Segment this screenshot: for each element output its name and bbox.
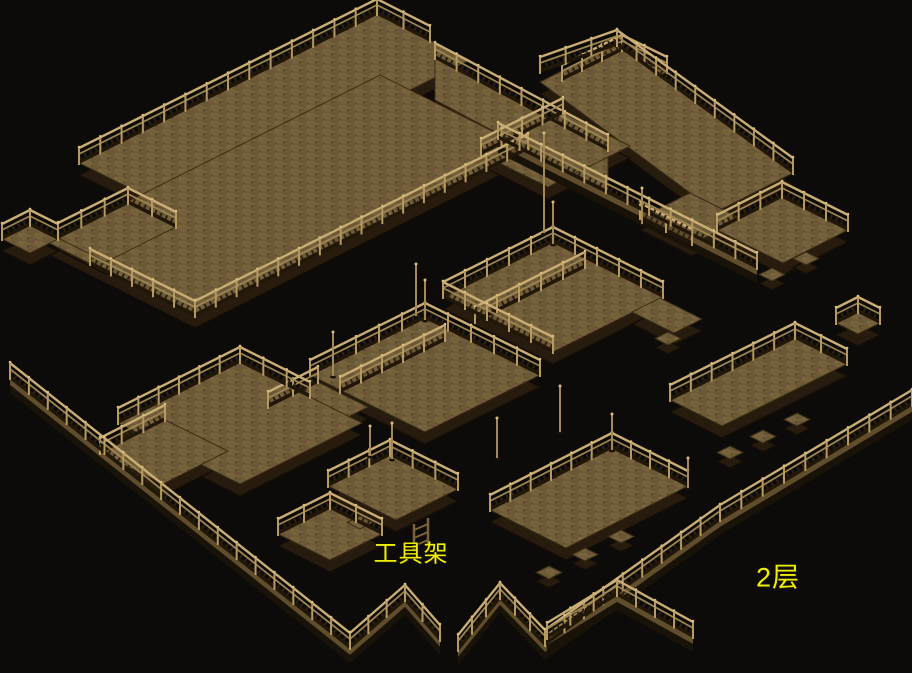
railing-post-cap <box>457 633 460 636</box>
railing-post-cap <box>442 280 445 283</box>
railing-post-cap <box>137 396 140 399</box>
scaffold-pole-cap <box>332 331 335 334</box>
railing-post-cap <box>583 164 586 167</box>
railing-post-cap <box>592 592 595 595</box>
railing-post-cap <box>120 124 123 127</box>
railing-post-cap <box>110 257 113 260</box>
railing-post-cap <box>486 258 489 261</box>
railing-bar <box>2 210 30 224</box>
railing-post-cap <box>497 121 500 124</box>
railing-post-cap <box>680 530 683 533</box>
railing-post-cap <box>78 146 81 149</box>
railing-post-cap <box>29 208 32 211</box>
scaffold-pole-cap <box>391 422 394 425</box>
railing-post-cap <box>541 106 544 109</box>
railing-post-cap <box>457 472 460 475</box>
railing-post-cap <box>660 544 663 547</box>
railing-post-cap <box>423 184 426 187</box>
railing-post-cap <box>569 606 572 609</box>
railing-post-cap <box>103 436 106 439</box>
railing-post-cap <box>857 295 860 298</box>
railing-post-cap <box>699 517 702 520</box>
scaffold-pole-cap <box>641 187 644 190</box>
railing-post-cap <box>327 469 330 472</box>
railing-post-cap <box>439 623 442 626</box>
railing-post-cap <box>590 37 593 40</box>
railing-post-cap <box>339 226 342 229</box>
railing-post-cap <box>312 29 315 32</box>
railing-post-cap <box>277 517 280 520</box>
railing-post-cap <box>194 299 197 302</box>
railing-post-cap <box>215 288 218 291</box>
railing-post-cap <box>160 481 163 484</box>
railing-post-cap <box>508 313 511 316</box>
railing-post-cap <box>360 364 363 367</box>
railing-post-cap <box>734 240 737 243</box>
railing-post-cap <box>635 588 638 591</box>
railing-post-cap <box>319 236 322 239</box>
railing-post-cap <box>471 615 474 618</box>
game-map-viewport[interactable]: 工具架 2层 <box>0 0 912 673</box>
railing-post-cap <box>737 202 740 205</box>
railing-post-cap <box>710 362 713 365</box>
tool-rack-bar <box>414 524 428 530</box>
scaffold-pole-cap <box>543 132 546 135</box>
railing-post-cap <box>794 321 797 324</box>
railing-post-cap <box>773 331 776 334</box>
railing-post-cap <box>868 413 871 416</box>
railing-post-cap <box>277 257 280 260</box>
railing-post-cap <box>464 269 467 272</box>
railing-post-cap <box>616 578 619 581</box>
platform-floor <box>750 430 776 443</box>
scaffold-pole-cap <box>415 263 418 266</box>
railing-post-cap <box>731 352 734 355</box>
railing-post-cap <box>740 490 743 493</box>
railing-post-cap <box>499 581 502 584</box>
railing-post-cap <box>46 391 49 394</box>
railing-post-cap <box>713 229 716 232</box>
railing-post-cap <box>381 205 384 208</box>
railing-post-cap <box>385 599 388 602</box>
railing-post-cap <box>530 324 533 327</box>
railing-post-cap <box>317 365 320 368</box>
railing-post-cap <box>117 406 120 409</box>
railing-post-cap <box>355 504 358 507</box>
railing-post-cap <box>262 356 265 359</box>
railing-post-cap <box>616 28 619 31</box>
railing-post-cap <box>404 583 407 586</box>
railing-post-cap <box>84 421 87 424</box>
railing-post-cap <box>1 222 4 225</box>
railing-post-cap <box>163 103 166 106</box>
railing-post-cap <box>847 426 850 429</box>
railing-post-cap <box>508 247 511 250</box>
railing-post-cap <box>562 261 565 264</box>
railing-post-cap <box>179 496 182 499</box>
railing-post-cap <box>648 197 651 200</box>
tool-rack-bar <box>414 540 428 546</box>
railing-post-cap <box>520 87 523 90</box>
scaffold-pole-cap <box>687 457 690 460</box>
railing-post-cap <box>493 335 496 338</box>
railing-post-cap <box>499 75 502 78</box>
railing-post-cap <box>216 526 219 529</box>
railing-post-cap <box>521 116 524 119</box>
railing-post-cap <box>562 96 565 99</box>
railing-post-cap <box>516 346 519 349</box>
railing-post-cap <box>57 222 60 225</box>
railing-post-cap <box>539 55 542 58</box>
railing-post-cap <box>401 312 404 315</box>
railing-post-cap <box>205 82 208 85</box>
railing-post-cap <box>218 355 221 358</box>
railing-post-cap <box>329 491 332 494</box>
railing-post-cap <box>820 334 823 337</box>
railing-post-cap <box>248 61 251 64</box>
railing-post-cap <box>239 345 242 348</box>
railing-post-cap <box>273 571 276 574</box>
railing-post-cap <box>529 472 532 475</box>
railing-post-cap <box>713 99 716 102</box>
railing-post-cap <box>254 556 257 559</box>
railing-post-cap <box>142 414 145 417</box>
railing-bar <box>858 297 880 308</box>
railing-post-cap <box>434 41 437 44</box>
railing-post-cap <box>509 482 512 485</box>
railing-post-cap <box>584 250 587 253</box>
map-objects-layer <box>414 518 428 552</box>
railing-post-cap <box>673 609 676 612</box>
railing-post-cap <box>292 586 295 589</box>
railing-post-cap <box>626 186 629 189</box>
railing-post-cap <box>444 323 447 326</box>
railing-post-cap <box>175 210 178 213</box>
railing-post-cap <box>429 24 432 27</box>
railing-post-cap <box>447 312 450 315</box>
railing-post-cap <box>378 324 381 327</box>
railing-post-cap <box>151 198 154 201</box>
railing-post-cap <box>131 268 134 271</box>
railing-post-cap <box>333 18 336 21</box>
railing-post-cap <box>28 376 31 379</box>
railing-post-cap <box>759 191 762 194</box>
railing-post-cap <box>309 380 312 383</box>
railing-post-cap <box>470 324 473 327</box>
railing-post-cap <box>570 451 573 454</box>
railing-post-cap <box>596 247 599 250</box>
railing-post-cap <box>122 451 125 454</box>
railing-bar <box>350 599 405 647</box>
railing-post-cap <box>607 133 610 136</box>
railing-post-cap <box>669 207 672 210</box>
railing-bar <box>836 297 858 308</box>
railing-post-cap <box>649 450 652 453</box>
railing-post-cap <box>485 153 488 156</box>
railing-post-cap <box>550 462 553 465</box>
railing-post-cap <box>127 186 130 189</box>
railing-post-cap <box>389 438 392 441</box>
railing-post-cap <box>668 459 671 462</box>
railing-post-cap <box>485 598 488 601</box>
railing-post-cap <box>381 354 384 357</box>
railing-post-cap <box>173 288 176 291</box>
railing-post-cap <box>349 631 352 634</box>
railing-post-cap <box>546 621 549 624</box>
railing-post-cap <box>640 269 643 272</box>
railing-post-cap <box>309 358 312 361</box>
platform-floor <box>717 446 743 459</box>
platform-floor <box>536 566 562 579</box>
railing-post-cap <box>65 406 68 409</box>
railing-post-cap <box>227 71 230 74</box>
railing-post-cap <box>574 236 577 239</box>
railing-post-cap <box>354 7 357 10</box>
railing-post-cap <box>198 365 201 368</box>
railing-post-cap <box>542 98 545 101</box>
railing-post-cap <box>846 347 849 350</box>
railing-post-cap <box>402 10 405 13</box>
scaffold-pole-cap <box>424 279 427 282</box>
railing-post-cap <box>514 596 517 599</box>
railing-post-cap <box>756 251 759 254</box>
railing-post-cap <box>669 383 672 386</box>
railing-post-cap <box>267 390 270 393</box>
railing-post-cap <box>539 358 542 361</box>
railing-post-cap <box>434 460 437 463</box>
railing-post-cap <box>303 504 306 507</box>
railing-post-cap <box>518 132 521 135</box>
railing-post-cap <box>464 163 467 166</box>
railing-post-cap <box>540 272 543 275</box>
railing-post-cap <box>339 375 342 378</box>
railing-post-cap <box>825 439 828 442</box>
railing-post-cap <box>152 278 155 281</box>
railing-post-cap <box>285 368 288 371</box>
railing-post-cap <box>164 403 167 406</box>
railing-post-cap <box>291 39 294 42</box>
railing-post-cap <box>184 92 187 95</box>
walkway-shadow <box>720 412 912 535</box>
railing-post-cap <box>235 278 238 281</box>
railing-post-cap <box>178 375 181 378</box>
railing-post-cap <box>518 283 521 286</box>
railing-post-cap <box>486 302 489 305</box>
railing-post-cap <box>674 70 677 73</box>
railing-post-cap <box>719 503 722 506</box>
railing-post-cap <box>235 541 238 544</box>
railing-post-cap <box>540 142 543 145</box>
railing-post-cap <box>692 620 695 623</box>
railing-post-cap <box>527 132 530 135</box>
railing-post-cap <box>120 425 123 428</box>
railing-post-cap <box>544 628 547 631</box>
railing-post-cap <box>655 56 658 59</box>
railing-post-cap <box>654 599 657 602</box>
railing-post-cap <box>752 341 755 344</box>
railing-post-cap <box>781 180 784 183</box>
railing-post-cap <box>367 615 370 618</box>
railing-post-cap <box>198 511 201 514</box>
railing-post-cap <box>360 215 363 218</box>
railing-post-cap <box>347 458 350 461</box>
railing-post-cap <box>355 335 358 338</box>
railing-post-cap <box>564 46 567 49</box>
railing-post-cap <box>500 126 503 129</box>
railing-post-cap <box>330 616 333 619</box>
isometric-map-canvas[interactable] <box>0 0 912 673</box>
scaffold-pole-cap <box>369 425 372 428</box>
railing-post-cap <box>761 477 764 480</box>
railing-post-cap <box>733 113 736 116</box>
scaffold-pole-cap <box>496 417 499 420</box>
platform-floor <box>784 413 810 426</box>
railing-post-cap <box>477 64 480 67</box>
railing-post-cap <box>530 236 533 239</box>
railing-post-cap <box>716 213 719 216</box>
railing-post-cap <box>480 137 483 140</box>
railing-post-cap <box>443 173 446 176</box>
railing-post-cap <box>311 601 314 604</box>
railing-post-cap <box>141 466 144 469</box>
railing-bar <box>30 210 58 224</box>
railing-post-cap <box>825 202 828 205</box>
railing-post-cap <box>455 52 458 55</box>
railing-post-cap <box>9 361 12 364</box>
railing-post-cap <box>792 156 795 159</box>
railing-post-cap <box>381 517 384 520</box>
railing-post-cap <box>489 493 492 496</box>
railing-post-cap <box>621 572 624 575</box>
railing-post-cap <box>605 175 608 178</box>
scaffold-pole-cap <box>611 413 614 416</box>
railing-post-cap <box>879 306 882 309</box>
railing-post-cap <box>411 449 414 452</box>
railing-post-cap <box>630 440 633 443</box>
railing-post-cap <box>80 209 83 212</box>
railing-post-cap <box>783 464 786 467</box>
railing-post-cap <box>618 258 621 261</box>
tool-rack-bar <box>414 532 428 538</box>
railing-post-cap <box>694 85 697 88</box>
railing-post-cap <box>691 218 694 221</box>
railing-post-cap <box>835 306 838 309</box>
railing-post-cap <box>256 267 259 270</box>
railing-post-cap <box>590 441 593 444</box>
railing-post-cap <box>402 194 405 197</box>
railing-post-cap <box>157 385 160 388</box>
railing-post-cap <box>889 400 892 403</box>
railing-bar <box>500 597 545 644</box>
railing-post-cap <box>662 280 665 283</box>
railing-post-cap <box>585 121 588 124</box>
railing-post-cap <box>803 191 806 194</box>
railing-post-cap <box>269 50 272 53</box>
railing-post-cap <box>804 452 807 455</box>
railing-post-cap <box>496 294 499 297</box>
railing-post-cap <box>690 372 693 375</box>
railing-post-cap <box>847 213 850 216</box>
scaffold-pole-cap <box>552 201 555 204</box>
tool-rack-object <box>414 518 428 552</box>
railing-post-cap <box>402 344 405 347</box>
railing-post-cap <box>103 197 106 200</box>
railing-bar <box>458 597 500 649</box>
railing-post-cap <box>529 612 532 615</box>
railing-post-cap <box>561 153 564 156</box>
railing-post-cap <box>635 42 638 45</box>
railing-post-cap <box>89 247 92 250</box>
railing-post-cap <box>753 127 756 130</box>
railing-post-cap <box>421 603 424 606</box>
railing-post-cap <box>552 335 555 338</box>
railing-post-cap <box>641 558 644 561</box>
railing-post-cap <box>772 141 775 144</box>
railing-post-cap <box>99 135 102 138</box>
railing-post-cap <box>423 333 426 336</box>
railing-post-cap <box>142 114 145 117</box>
scaffold-pole-cap <box>559 385 562 388</box>
railing-post-cap <box>666 55 669 58</box>
railing-post-cap <box>298 247 301 250</box>
railing-post-cap <box>464 291 467 294</box>
railing-post-cap <box>643 44 646 47</box>
